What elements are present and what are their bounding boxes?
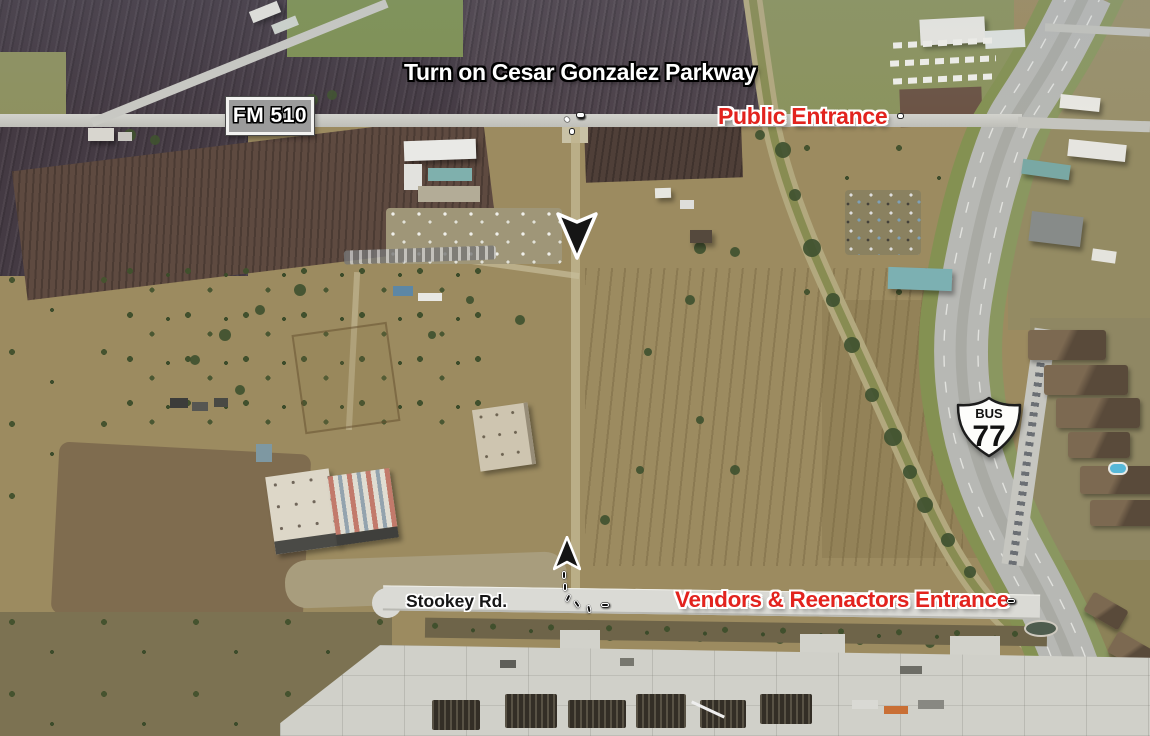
yard-equipment-2: [620, 658, 634, 666]
trailer-dark-3: [214, 398, 228, 407]
warehouse-gray-east: [1028, 211, 1083, 247]
down-arrow-icon: [556, 212, 598, 260]
apartment-building-4: [1068, 432, 1130, 458]
vendors-route-curve-dash-2: [563, 583, 567, 591]
route-dash: [601, 603, 609, 607]
us-route-bus-77-shield: BUS 77: [955, 395, 1023, 459]
road-cesar-gonzalez-parkway: [571, 127, 580, 605]
aerial-map: Turn on Cesar Gonzalez Parkway FM 510 Pu…: [0, 0, 1150, 736]
trailer-dark-1: [170, 398, 188, 408]
route-dash: [898, 114, 903, 118]
public-entrance-label: Public Entrance: [718, 103, 887, 130]
farm-shed-west: [118, 132, 132, 141]
yard-equipment-3: [900, 666, 922, 674]
apartment-building-3: [1056, 398, 1140, 428]
pipe-bundle-4: [636, 694, 686, 728]
barn-complex: [264, 454, 403, 561]
apartment-building-2: [1044, 365, 1128, 395]
yard-truck-3: [918, 700, 944, 709]
route-dash: [577, 113, 584, 117]
stookey-road-label: Stookey Rd.: [406, 591, 507, 612]
route-dash: [570, 129, 574, 134]
pipe-bundle-3: [568, 700, 626, 728]
route-dash: [1007, 599, 1015, 603]
arena-fence-outline: [292, 322, 401, 434]
commercial-building-white-roof: [404, 139, 477, 162]
apartment-building-1: [1028, 330, 1106, 360]
vendors-entrance-label: Vendors & Reenactors Entrance: [675, 587, 1009, 613]
bus-shield-banner: BUS: [975, 406, 1003, 421]
shed-blue-gray: [256, 444, 272, 462]
commercial-building-teal-roof: [428, 168, 472, 181]
instruction-label: Turn on Cesar Gonzalez Parkway: [404, 59, 756, 86]
yard-truck-2: [884, 706, 908, 714]
blue-shed: [393, 286, 413, 296]
pipe-bundle-6: [760, 694, 812, 724]
up-arrow-icon: [553, 536, 581, 572]
fm-510-shield: FM 510: [226, 97, 314, 135]
outbuilding-white-1: [655, 188, 671, 199]
warehouse-teal-west-of-highway: [888, 267, 953, 291]
outbuilding-white-2: [680, 200, 694, 209]
swimming-pool: [1108, 462, 1128, 475]
white-shed: [418, 293, 442, 301]
commercial-parking-lot: [418, 186, 480, 202]
fm-510-shield-label: FM 510: [233, 104, 307, 128]
barn-striped-roof: [328, 468, 399, 546]
warehouse-tan-roof: [472, 402, 536, 471]
apartment-building-6: [1090, 500, 1150, 526]
trailer-dark-2: [192, 402, 208, 411]
bus-shield-number: 77: [972, 420, 1005, 453]
farmhouse-west: [88, 128, 114, 141]
pipe-bundle-2: [505, 694, 557, 728]
yard-equipment-1: [500, 660, 516, 668]
yard-truck-1: [852, 700, 878, 709]
vendors-route-curve-dash-1: [562, 571, 566, 579]
farmhouse-dark-roof: [690, 230, 712, 243]
drainage-culvert-pond: [1024, 620, 1058, 637]
pipe-bundle-1: [432, 700, 480, 730]
